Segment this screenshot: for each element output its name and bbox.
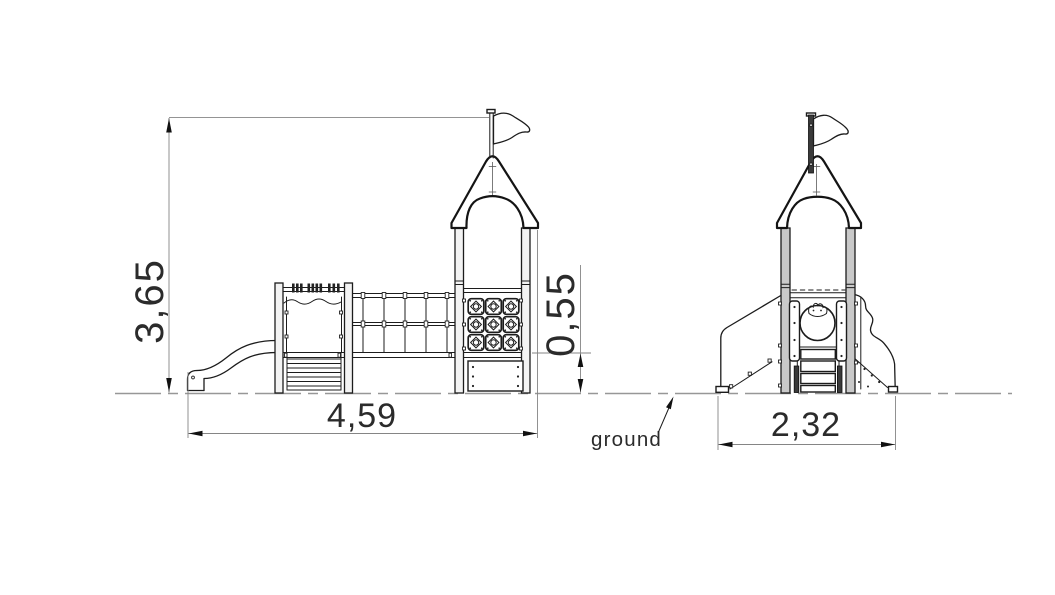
platform-post-left: [275, 283, 283, 393]
width-dimension-value: 2,32: [771, 406, 841, 444]
front-elevation-view: 2,32: [716, 113, 898, 450]
platform-steps: [287, 353, 341, 391]
tower-post-left: [455, 228, 464, 393]
activity-panel-grid: [463, 299, 523, 351]
width-dimension: 2,32: [718, 396, 896, 450]
step-stringer-right: [837, 366, 842, 393]
castle-roof-front: [777, 156, 861, 228]
front-post-right: [846, 228, 855, 393]
length-dimension-value: 4,59: [327, 397, 397, 435]
side-ramp-left: [716, 296, 781, 393]
ground-label: ground: [591, 397, 674, 452]
castle-roof: [452, 156, 539, 228]
side-elevation-view: 3,65: [128, 110, 591, 439]
flag-pennant: [494, 113, 530, 144]
tower-base-panel: [468, 361, 523, 391]
castle-tower-side: [452, 110, 539, 394]
flag-pennant-front: [814, 115, 849, 146]
ground-label-text: ground: [591, 428, 662, 451]
platform-height-dimension: 0,55: [532, 265, 591, 393]
platform-post-right: [345, 283, 353, 393]
net-bridge: [353, 293, 455, 353]
slide: [188, 341, 278, 391]
bead-rail: [283, 284, 345, 293]
left-platform: [275, 283, 353, 393]
ground-leader-arrow: [666, 397, 674, 410]
flag-icon-front: [807, 113, 849, 173]
front-post-left: [781, 228, 790, 393]
height-dimension: 3,65: [128, 118, 489, 393]
platform-deck: [283, 353, 530, 358]
flag-icon: [487, 110, 530, 159]
height-dimension-value: 3,65: [128, 258, 172, 344]
drawing-canvas: 3,65: [0, 0, 1055, 595]
slide-end-bolt: [192, 376, 195, 379]
panel-wavy-edge: [284, 299, 341, 304]
door-panel-right: [837, 301, 847, 361]
step-stringer-left: [794, 366, 799, 393]
side-ramp-right: [853, 295, 898, 393]
front-steps: [794, 347, 842, 393]
porthole-window: [800, 303, 835, 340]
door-panel-left: [790, 301, 800, 361]
platform-height-value: 0,55: [539, 271, 583, 357]
